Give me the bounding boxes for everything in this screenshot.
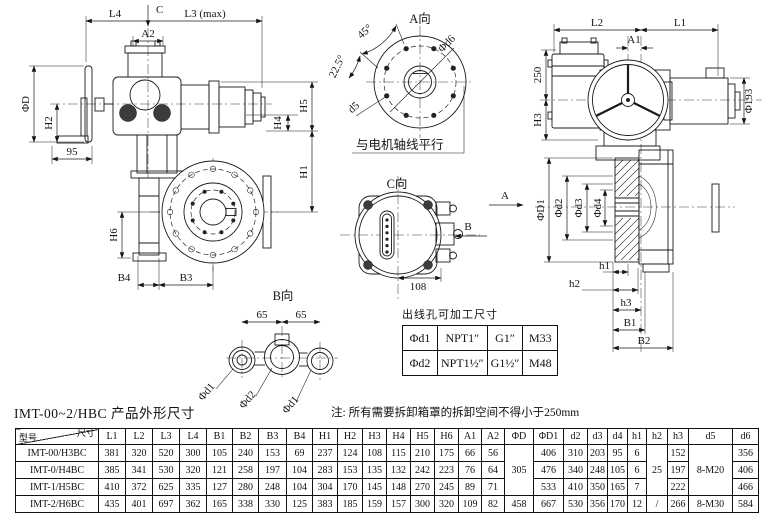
dim-cell: 533: [534, 479, 564, 496]
dim-label-h1: H1: [298, 165, 310, 178]
dim-cell: 170: [338, 479, 363, 496]
dim-cell: 625: [153, 479, 180, 496]
dim-cell: 435: [99, 496, 126, 513]
indicator-window: [120, 105, 137, 122]
model-cell: IMT-0/H4BC: [16, 462, 99, 479]
dim-label-65a: 65: [257, 309, 269, 321]
dim-cell: 197: [259, 462, 287, 479]
direction-arrows: A B: [455, 190, 523, 236]
dim-cell: /: [647, 496, 668, 513]
dim-cell: 157: [387, 496, 411, 513]
dim-label-l2: L2: [591, 17, 603, 29]
corner-size-label: 尺寸: [77, 429, 95, 439]
dim-cell: 335: [180, 479, 207, 496]
dim-label-phiD1: ΦD1: [535, 199, 547, 220]
dim-cell: 175: [435, 445, 459, 462]
dim-cell: 203: [588, 445, 608, 462]
dim-label-sh3: h3: [621, 297, 633, 309]
drawing-canvas: L4 C L3 (max) A2 ΦD H2 95 H5 H4 H1 H6 B4…: [0, 0, 769, 420]
dim-label-22-5deg: 22.5°: [327, 53, 348, 80]
dim-col-header: h2: [647, 429, 668, 445]
dim-cell: 406: [534, 445, 564, 462]
dim-cell: 135: [363, 462, 387, 479]
dim-cell: 8-M20: [689, 445, 733, 496]
dim-cell: 248: [588, 462, 608, 479]
dim-cell: 300: [180, 445, 207, 462]
right-view: L2 L1 A1 250 H3 Φ193 ΦD1 Φd2 Φd3 Φd4 h1 …: [455, 17, 762, 352]
cable-table-cell: M48: [523, 351, 558, 376]
dim-cell: 210: [411, 445, 435, 462]
dim-label-c: C: [156, 4, 163, 16]
dim-col-header: B2: [233, 429, 259, 445]
cable-table-cell: Φd1: [403, 326, 438, 351]
corner-cell: 尺寸 型号: [16, 429, 99, 445]
dim-col-header: H1: [313, 429, 338, 445]
view-b: B向 65 65 Φd1 Φd2 Φd1: [196, 288, 338, 416]
dim-cell: 237: [313, 445, 338, 462]
dim-col-header: L2: [126, 429, 153, 445]
dim-cell: 185: [338, 496, 363, 513]
dim-col-header: A1: [459, 429, 482, 445]
dim-cell: 125: [287, 496, 313, 513]
dim-cell: 165: [207, 496, 233, 513]
dim-cell: 667: [534, 496, 564, 513]
model-cell: IMT-1/H5BC: [16, 479, 99, 496]
dim-label-phiD: ΦD: [20, 96, 32, 112]
model-cell: IMT-2/H6BC: [16, 496, 99, 513]
dim-cell: 320: [435, 496, 459, 513]
dim-cell: 245: [435, 479, 459, 496]
dim-cell: 458: [505, 496, 534, 513]
dim-cell: 104: [287, 462, 313, 479]
dim-cell: 145: [363, 479, 387, 496]
dim-cell: 12: [628, 496, 647, 513]
dim-cell: 356: [588, 496, 608, 513]
dim-cell: 385: [99, 462, 126, 479]
dim-cell: 6: [628, 445, 647, 462]
dim-col-header: B3: [259, 429, 287, 445]
dim-cell: 401: [126, 496, 153, 513]
dim-col-header: ΦD1: [534, 429, 564, 445]
dim-cell: 362: [180, 496, 207, 513]
dim-col-header: L3: [153, 429, 180, 445]
dim-cell: 153: [338, 462, 363, 479]
dim-col-header: L1: [99, 429, 126, 445]
dim-label-phid4: Φd4: [592, 198, 604, 218]
dim-label-bphid1a: Φd1: [196, 381, 217, 403]
dim-col-header: A2: [482, 429, 505, 445]
dim-table-row: IMT-00/H3BC38132052030010524015369237124…: [16, 445, 759, 462]
view-c: C向 108: [340, 176, 480, 300]
dim-cell: 69: [287, 445, 313, 462]
dim-cell: 270: [411, 479, 435, 496]
cable-table-cell: NPT1″: [438, 326, 488, 351]
handwheel: [588, 60, 668, 140]
dim-cell: 310: [564, 445, 588, 462]
dim-label-a1: A1: [627, 34, 640, 46]
dim-col-header: d6: [733, 429, 759, 445]
dim-label-bphid2: Φd2: [237, 389, 258, 411]
cable-table-body: Φd1NPT1″G1″M33Φd2NPT1½″G1½″M48: [403, 326, 558, 376]
dim-col-header: H6: [435, 429, 459, 445]
drawing-sheet: L4 C L3 (max) A2 ΦD H2 95 H5 H4 H1 H6 B4…: [0, 0, 769, 524]
dim-table-body: IMT-00/H3BC38132052030010524015369237124…: [16, 445, 759, 513]
dim-cell: 56: [482, 445, 505, 462]
dim-col-header: d3: [588, 429, 608, 445]
dim-col-header: H5: [411, 429, 435, 445]
dim-cell: 466: [733, 479, 759, 496]
dir-label-b: B: [464, 221, 471, 233]
dim-cell: 242: [411, 462, 435, 479]
sheet-note: 注: 所有需要拆卸箱罩的拆卸空间不得小于250mm: [331, 404, 579, 420]
dim-table-row: IMT-2/H6BC435401697362165338330125383185…: [16, 496, 759, 513]
dim-label-l1: L1: [674, 17, 686, 29]
dim-label-phid3: Φd3: [573, 198, 585, 218]
dim-cell: 223: [435, 462, 459, 479]
dim-label-65b: 65: [296, 309, 308, 321]
dim-cell: 132: [387, 462, 411, 479]
dim-cell: 304: [313, 479, 338, 496]
dim-cell: 121: [207, 462, 233, 479]
dim-cell: 105: [608, 462, 628, 479]
dim-label-b3: B3: [180, 272, 193, 284]
indicator-window: [154, 105, 171, 122]
dim-label-h6: H6: [108, 228, 120, 242]
dim-cell: 283: [313, 462, 338, 479]
dim-cell: 266: [668, 496, 689, 513]
dim-cell: 7: [628, 479, 647, 496]
dim-col-header: ΦD: [505, 429, 534, 445]
dim-cell: 76: [459, 462, 482, 479]
dim-cell: 381: [99, 445, 126, 462]
cable-table-cell: NPT1½″: [438, 351, 488, 376]
cable-table-cell: G1½″: [487, 351, 523, 376]
dim-col-header: d2: [564, 429, 588, 445]
dim-cell: 406: [733, 462, 759, 479]
dim-cell: 8-M30: [689, 496, 733, 513]
view-a: A向 45° 22.5° Φd6 d5 与电机轴线平行: [327, 11, 474, 153]
dim-cell: 280: [233, 479, 259, 496]
dim-cell: 222: [668, 479, 689, 496]
dim-cell: 165: [608, 479, 628, 496]
dimension-table: 尺寸 型号 L1L2L3L4B1B2B3B4H1H2H3H4H5H6A1A2ΦD…: [15, 428, 759, 513]
dim-label-sh2: h2: [569, 278, 580, 290]
dim-cell: 340: [564, 462, 588, 479]
dim-cell: 410: [564, 479, 588, 496]
dim-label-h2: H2: [43, 116, 55, 129]
dim-label-a2: A2: [141, 28, 154, 40]
section-view: [615, 150, 719, 272]
dim-cell: 66: [459, 445, 482, 462]
dim-cell: 305: [505, 445, 534, 496]
dim-cell: 356: [733, 445, 759, 462]
dim-cell: 383: [313, 496, 338, 513]
dim-cell: 64: [482, 462, 505, 479]
front-dimensions: L4 C L3 (max) A2 ΦD H2 95 H5 H4 H1 H6 B4…: [20, 4, 318, 290]
cable-table-title: 出线孔可加工尺寸: [402, 306, 558, 322]
front-flange: [162, 161, 264, 263]
front-view: L4 C L3 (max) A2 ΦD H2 95 H5 H4 H1 H6 B4…: [20, 4, 318, 290]
cable-table-cell: G1″: [487, 326, 523, 351]
dim-cell: 105: [207, 445, 233, 462]
view-c-title: C向: [387, 176, 408, 191]
dim-cell: 320: [180, 462, 207, 479]
dim-col-header: d5: [689, 429, 733, 445]
dim-cell: 104: [287, 479, 313, 496]
dim-cell: 530: [153, 462, 180, 479]
dim-cell: 89: [459, 479, 482, 496]
dim-label-sh1: h1: [599, 260, 610, 272]
dim-label-h4: H4: [272, 116, 284, 130]
dim-cell: 153: [259, 445, 287, 462]
dim-col-header: H2: [338, 429, 363, 445]
dim-cell: 159: [363, 496, 387, 513]
dim-label-h3: H3: [532, 113, 544, 127]
dim-cell: 248: [259, 479, 287, 496]
dim-cell: 476: [534, 462, 564, 479]
dim-cell: 6: [628, 462, 647, 479]
cable-table-row: Φd1NPT1″G1″M33: [403, 326, 558, 351]
corner-model-label: 型号: [19, 434, 37, 444]
dim-cell: 71: [482, 479, 505, 496]
dim-label-108: 108: [410, 281, 427, 293]
dim-cell: 124: [338, 445, 363, 462]
dim-cell: 115: [387, 445, 411, 462]
dim-cell: 338: [233, 496, 259, 513]
dim-cell: 82: [482, 496, 505, 513]
dim-cell: 300: [411, 496, 435, 513]
dim-label-b2: B2: [638, 335, 651, 347]
dim-cell: 95: [608, 445, 628, 462]
dim-label-phid2: Φd2: [553, 198, 565, 217]
dim-cell: 320: [126, 445, 153, 462]
dim-cell: 170: [608, 496, 628, 513]
dim-label-b4: B4: [118, 272, 131, 284]
dim-cell: 350: [588, 479, 608, 496]
dim-col-header: h3: [668, 429, 689, 445]
dim-cell: 697: [153, 496, 180, 513]
dim-cell: 330: [259, 496, 287, 513]
dim-cell: 410: [99, 479, 126, 496]
dim-label-l3: L3 (max): [184, 8, 226, 20]
dim-label-l4: L4: [109, 8, 122, 20]
dim-table-header-row: 尺寸 型号 L1L2L3L4B1B2B3B4H1H2H3H4H5H6A1A2ΦD…: [16, 429, 759, 445]
dim-cell: 584: [733, 496, 759, 513]
view-b-title: B向: [273, 288, 294, 303]
dim-label-phi193: Φ193: [743, 88, 755, 113]
cable-entry-table: 出线孔可加工尺寸 Φd1NPT1″G1″M33Φd2NPT1½″G1½″M48: [402, 306, 558, 376]
dim-cell: 109: [459, 496, 482, 513]
dim-label-b1: B1: [624, 317, 637, 329]
dim-col-header: L4: [180, 429, 207, 445]
dim-cell: 240: [233, 445, 259, 462]
model-cell: IMT-00/H3BC: [16, 445, 99, 462]
dim-cell: 25: [647, 445, 668, 496]
dim-col-header: d4: [608, 429, 628, 445]
dim-cell: 341: [126, 462, 153, 479]
dim-cell: 520: [153, 445, 180, 462]
dim-cell: 258: [233, 462, 259, 479]
cable-table-cell: M33: [523, 326, 558, 351]
view-a-title: A向: [409, 11, 431, 26]
dim-cell: 372: [126, 479, 153, 496]
dim-label-h5: H5: [298, 99, 310, 113]
motor-axis-note: 与电机轴线平行: [356, 137, 444, 152]
dim-col-header: H4: [387, 429, 411, 445]
dim-cell: 108: [363, 445, 387, 462]
dim-col-header: B1: [207, 429, 233, 445]
dim-cell: 148: [387, 479, 411, 496]
cable-table-cell: Φd2: [403, 351, 438, 376]
dim-col-header: h1: [628, 429, 647, 445]
dim-label-95: 95: [67, 146, 79, 158]
dim-cell: 197: [668, 462, 689, 479]
dir-label-a: A: [501, 190, 509, 202]
dim-col-header: B4: [287, 429, 313, 445]
dim-cell: 152: [668, 445, 689, 462]
sheet-caption: IMT-00~2/HBC 产品外形尺寸: [14, 402, 195, 422]
dim-cell: 127: [207, 479, 233, 496]
dim-col-header: H3: [363, 429, 387, 445]
dim-cell: 530: [564, 496, 588, 513]
dim-label-45deg: 45°: [355, 22, 374, 41]
dim-label-250: 250: [532, 66, 544, 83]
cable-table-row: Φd2NPT1½″G1½″M48: [403, 351, 558, 376]
